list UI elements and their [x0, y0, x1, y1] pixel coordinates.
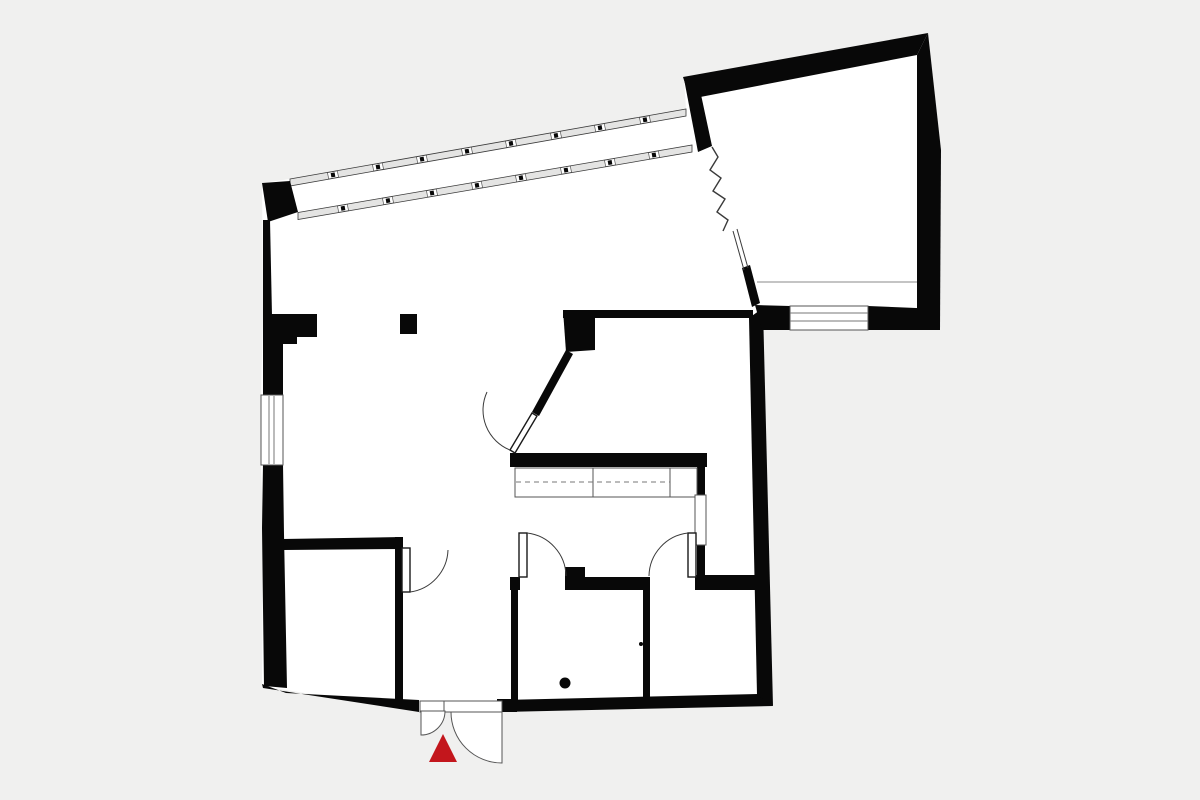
curtain-wall-lower-mullion-4 [472, 181, 483, 189]
door-leaf-kitchen-right [688, 533, 696, 577]
curtain-wall-upper-mullion-6 [551, 131, 562, 139]
wall-middle-room-bottom [510, 453, 707, 467]
curtain-wall-upper-mullion-3 [417, 155, 428, 163]
curtain-wall-lower-mullion-1 [338, 204, 349, 212]
wall-kitchen-bottom-c [695, 575, 757, 590]
curtain-wall-upper-mullion-4 [462, 147, 473, 155]
curtain-wall-lower-mullion-6 [561, 166, 572, 174]
wall-left-lower [262, 464, 287, 688]
window-upper-room [790, 306, 868, 330]
curtain-wall-upper-mullion-2 [373, 163, 384, 171]
curtain-wall-upper-mullion-8 [640, 116, 651, 124]
window-left-wall [261, 395, 283, 465]
wall-bottom-middle-room-left [511, 580, 518, 700]
entrance-threshold [420, 701, 502, 712]
wall-pantry-upper [697, 465, 705, 496]
wall-bottom-left-room-top [283, 537, 403, 550]
door-leaf-kitchen-left [519, 533, 527, 577]
door-leaf-bottom-left-room [402, 548, 410, 592]
wall-bottom-rooms-divider [643, 582, 650, 700]
curtain-wall-lower-mullion-5 [516, 174, 527, 182]
floor-plan-svg [0, 0, 1200, 800]
column-main-hall [400, 314, 417, 334]
floor-dot-large [560, 678, 571, 689]
pier-kitchen-column [565, 567, 585, 582]
curtain-wall-upper-mullion-5 [506, 139, 517, 147]
floor-plan-image [0, 0, 1200, 800]
curtain-wall-upper-mullion-7 [595, 124, 606, 132]
wall-left-mid [263, 342, 283, 396]
floor-dot-small [639, 642, 643, 646]
curtain-wall-upper-mullion-1 [328, 171, 339, 179]
curtain-wall-lower-mullion-8 [649, 151, 660, 159]
curtain-wall-lower-mullion-7 [605, 159, 616, 167]
curtain-wall-lower-mullion-3 [427, 189, 438, 197]
wall-middle-room-corner-block [563, 310, 595, 352]
curtain-wall-lower-mullion-2 [383, 197, 394, 205]
